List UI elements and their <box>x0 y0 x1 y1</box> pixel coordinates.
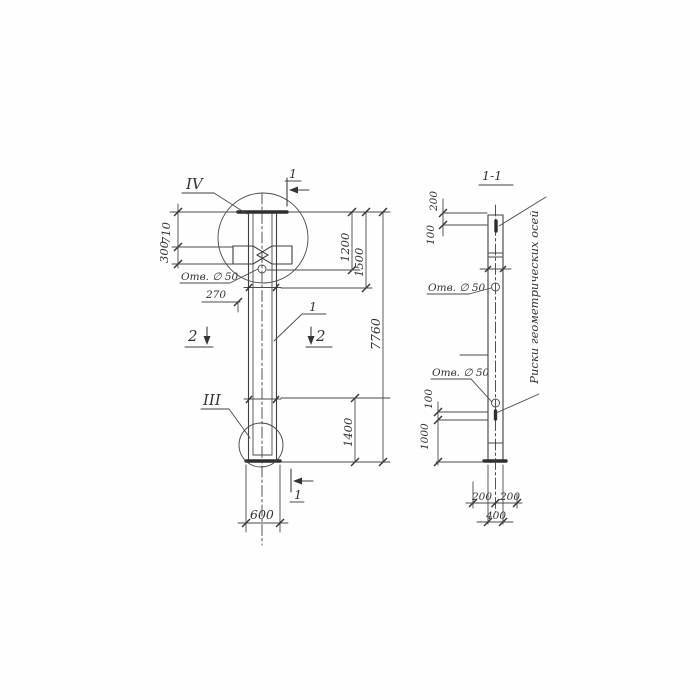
detail-IV-leader <box>214 193 247 214</box>
drawing-canvas: 710 300 Отв. ∅ 50 270 1200 1500 7760 140… <box>0 0 700 700</box>
cut1-top-label: 1 <box>289 166 297 181</box>
dim-1400: 1400 <box>341 418 355 447</box>
section-dim-100b: 100 <box>423 389 435 409</box>
section-dim-200: 200 <box>428 191 440 212</box>
section-view-geometry: 1-1 <box>460 168 513 512</box>
front-hole-label: Отв. ∅ 50 <box>181 271 239 283</box>
flange-left <box>233 246 268 264</box>
section-dim-200-right: 200 <box>499 491 520 503</box>
cut2-left-arrowhead <box>204 336 211 345</box>
section-title: 1-1 <box>482 168 502 183</box>
cut2-right-arrowhead <box>308 336 315 345</box>
section-dim-400: 400 <box>485 510 506 522</box>
section-dim-1000: 1000 <box>419 423 431 450</box>
section-hole-leader-lower <box>471 379 492 402</box>
cut2-left-label: 2 <box>187 327 198 345</box>
section-dim-100: 100 <box>425 225 437 245</box>
dim-1200: 1200 <box>338 233 352 262</box>
dim-270: 270 <box>205 289 226 301</box>
section-dim-200-left: 200 <box>471 491 492 503</box>
dim-600: 600 <box>250 507 274 522</box>
detail-circle-top <box>218 193 308 283</box>
dim-7760: 7760 <box>368 318 383 350</box>
detail-label-IV: IV <box>185 175 205 193</box>
detail-III-leader <box>229 409 250 438</box>
cut1-bottom-arrowhead <box>293 478 302 485</box>
cut1-bottom-label: 1 <box>294 487 302 502</box>
cut1-top-arrowhead <box>289 187 298 194</box>
front-view-markers: IV III 1 1 2 2 1 <box>182 166 332 502</box>
section-hole-label-lower: Отв. ∅ 50 <box>432 367 490 379</box>
cut2-right-label: 2 <box>315 327 326 345</box>
front-view-dimensions: 710 300 Отв. ∅ 50 270 1200 1500 7760 140… <box>157 204 390 532</box>
section-view-dimensions: 200 100 100 1000 200 200 400 Отв. ∅ 50 О… <box>419 191 546 526</box>
dim-710: 710 <box>159 222 173 244</box>
axes-note: Риски геометрических осей <box>527 210 541 384</box>
part-leader-label: 1 <box>309 299 317 314</box>
dim-300: 300 <box>157 241 171 263</box>
detail-label-III: III <box>202 391 222 409</box>
dim-1500: 1500 <box>352 248 366 277</box>
blueprint-page: 710 300 Отв. ∅ 50 270 1200 1500 7760 140… <box>0 0 700 700</box>
